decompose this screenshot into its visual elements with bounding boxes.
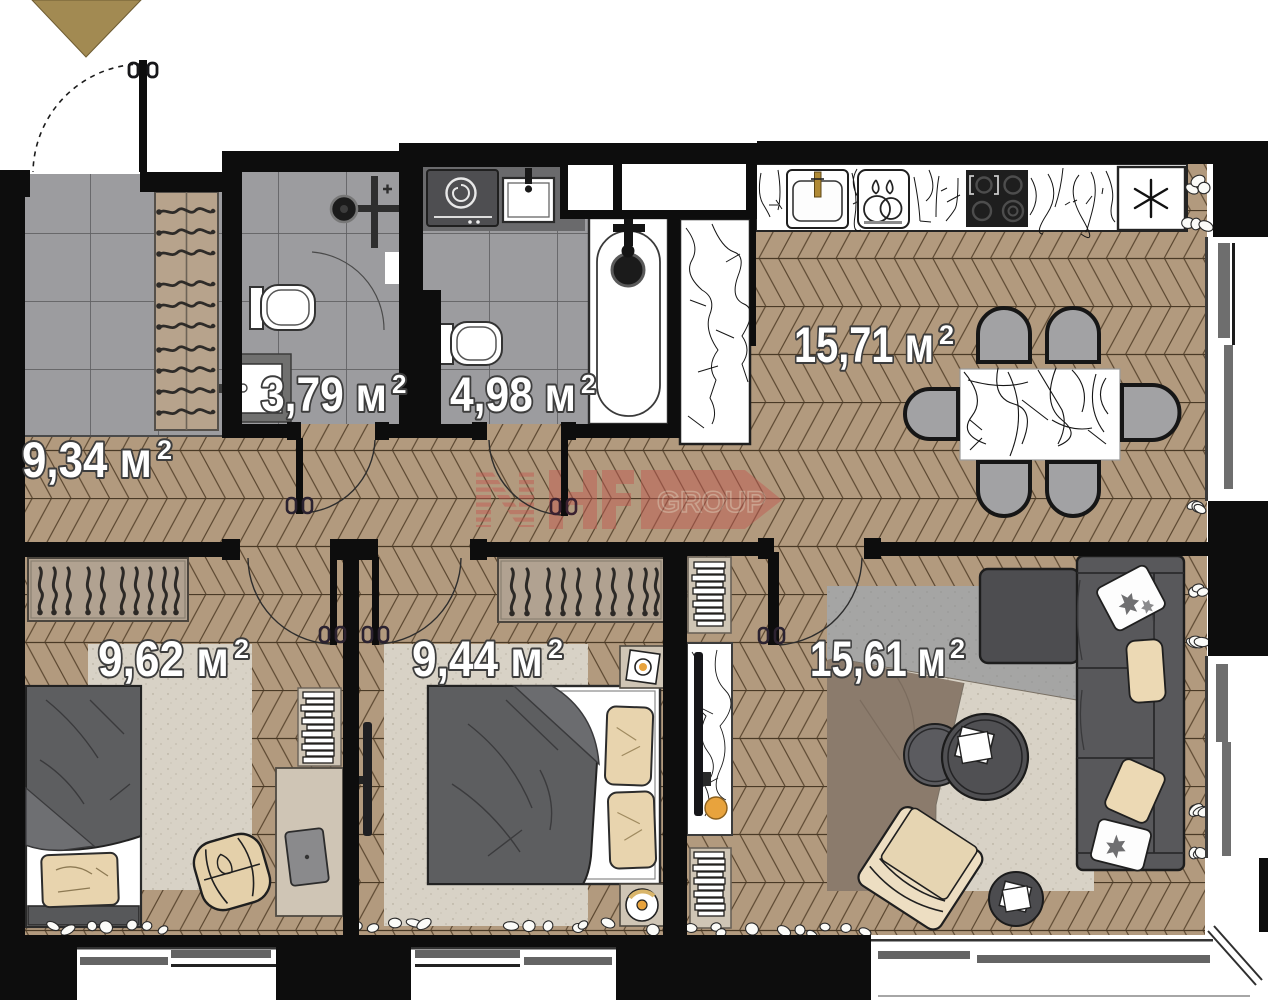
svg-text:2: 2 [548,634,563,664]
svg-text:9,44 м: 9,44 м [412,631,543,687]
svg-text:2: 2 [939,320,954,350]
svg-text:GROUP: GROUP [657,486,766,519]
svg-text:3,79 м: 3,79 м [261,369,387,422]
svg-text:2: 2 [234,634,249,664]
svg-text:9,34 м: 9,34 м [22,432,152,488]
svg-text:9,62 м: 9,62 м [98,631,229,687]
svg-text:2: 2 [581,369,595,399]
svg-text:2: 2 [157,435,172,465]
svg-text:2: 2 [392,369,406,399]
svg-text:15,61 м: 15,61 м [810,631,946,687]
svg-text:4,98 м: 4,98 м [450,369,576,422]
svg-text:15,71 м: 15,71 м [794,317,934,373]
svg-text:2: 2 [950,634,965,664]
